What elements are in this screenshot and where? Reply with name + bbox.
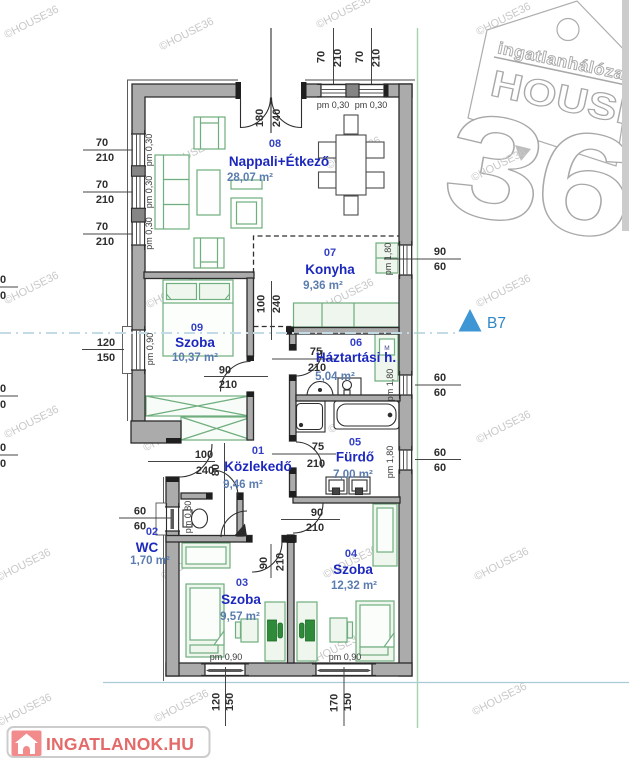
svg-text:pm 0,30: pm 0,30 bbox=[144, 176, 154, 209]
svg-text:210: 210 bbox=[96, 194, 114, 206]
svg-text:Konyha: Konyha bbox=[305, 262, 355, 277]
svg-text:pm 0,90: pm 0,90 bbox=[329, 652, 362, 662]
svg-text:7,00 m²: 7,00 m² bbox=[333, 469, 373, 481]
svg-text:75: 75 bbox=[312, 441, 324, 453]
svg-text:pm 0,30: pm 0,30 bbox=[144, 134, 154, 167]
svg-text:0: 0 bbox=[0, 290, 6, 302]
svg-text:9,57 m²: 9,57 m² bbox=[220, 611, 260, 623]
svg-text:01: 01 bbox=[252, 445, 264, 457]
svg-text:28,07 m²: 28,07 m² bbox=[227, 172, 273, 184]
svg-text:pm 0,30: pm 0,30 bbox=[317, 100, 350, 110]
svg-text:90: 90 bbox=[219, 365, 231, 377]
svg-text:150: 150 bbox=[224, 693, 236, 711]
svg-text:B7: B7 bbox=[487, 315, 506, 332]
svg-text:90: 90 bbox=[434, 246, 446, 258]
svg-text:M: M bbox=[384, 345, 389, 352]
svg-text:90: 90 bbox=[258, 557, 270, 569]
svg-text:0: 0 bbox=[0, 442, 6, 454]
svg-text:60: 60 bbox=[434, 261, 446, 273]
svg-text:0: 0 bbox=[0, 383, 6, 395]
svg-text:180: 180 bbox=[254, 109, 266, 127]
svg-text:pm 1,80: pm 1,80 bbox=[385, 369, 395, 402]
svg-text:240: 240 bbox=[271, 295, 283, 313]
svg-text:170: 170 bbox=[329, 694, 341, 712]
svg-text:60: 60 bbox=[134, 506, 146, 518]
svg-text:70: 70 bbox=[96, 221, 108, 233]
svg-text:210: 210 bbox=[307, 458, 325, 470]
svg-text:60: 60 bbox=[434, 447, 446, 459]
svg-text:9,46 m²: 9,46 m² bbox=[223, 479, 263, 491]
svg-text:120: 120 bbox=[97, 337, 115, 349]
svg-text:210: 210 bbox=[332, 49, 344, 67]
svg-text:100: 100 bbox=[195, 449, 213, 461]
svg-text:90: 90 bbox=[311, 507, 323, 519]
svg-text:9,36 m²: 9,36 m² bbox=[303, 280, 343, 292]
svg-text:60: 60 bbox=[134, 521, 146, 533]
svg-text:Közlekedő: Közlekedő bbox=[224, 459, 292, 474]
svg-text:150: 150 bbox=[97, 352, 115, 364]
svg-text:pm 0,30: pm 0,30 bbox=[355, 100, 388, 110]
svg-text:100: 100 bbox=[256, 295, 268, 313]
svg-text:0: 0 bbox=[0, 458, 6, 470]
svg-text:210: 210 bbox=[96, 152, 114, 164]
svg-text:12,32 m²: 12,32 m² bbox=[331, 580, 377, 592]
svg-text:Háztartási h.: Háztartási h. bbox=[316, 350, 396, 365]
svg-text:06: 06 bbox=[350, 337, 362, 349]
svg-text:120: 120 bbox=[211, 693, 223, 711]
svg-text:70: 70 bbox=[354, 51, 366, 63]
svg-text:210: 210 bbox=[96, 236, 114, 248]
svg-text:pm 0,30: pm 0,30 bbox=[144, 217, 154, 250]
svg-text:03: 03 bbox=[236, 577, 248, 589]
svg-text:pm 0,80: pm 0,80 bbox=[183, 501, 193, 534]
svg-text:02: 02 bbox=[146, 526, 158, 538]
svg-text:60: 60 bbox=[434, 387, 446, 399]
svg-text:Fürdő: Fürdő bbox=[336, 450, 374, 465]
svg-text:80: 80 bbox=[210, 464, 222, 476]
svg-text:pm 0,90: pm 0,90 bbox=[145, 333, 155, 366]
svg-text:04: 04 bbox=[345, 548, 358, 560]
svg-text:1,70 m²: 1,70 m² bbox=[130, 555, 170, 567]
svg-text:240: 240 bbox=[271, 109, 283, 127]
svg-text:70: 70 bbox=[96, 137, 108, 149]
svg-text:210: 210 bbox=[306, 522, 324, 534]
svg-text:05: 05 bbox=[349, 437, 361, 449]
svg-text:70: 70 bbox=[316, 51, 328, 63]
svg-text:INGATLANOK.HU: INGATLANOK.HU bbox=[46, 734, 194, 754]
svg-text:60: 60 bbox=[434, 372, 446, 384]
svg-text:210: 210 bbox=[371, 49, 383, 67]
svg-text:pm 1,80: pm 1,80 bbox=[385, 446, 395, 479]
svg-text:pm 0,90: pm 0,90 bbox=[210, 652, 243, 662]
svg-text:Szoba: Szoba bbox=[175, 335, 215, 350]
svg-text:WC: WC bbox=[136, 540, 159, 555]
svg-text:Szoba: Szoba bbox=[333, 562, 373, 577]
svg-text:210: 210 bbox=[219, 379, 237, 391]
svg-text:08: 08 bbox=[269, 138, 281, 150]
svg-text:70: 70 bbox=[96, 179, 108, 191]
svg-text:210: 210 bbox=[275, 553, 287, 571]
svg-text:Nappali+Étkező: Nappali+Étkező bbox=[229, 154, 329, 169]
svg-text:36: 36 bbox=[434, 80, 629, 272]
svg-text:07: 07 bbox=[324, 247, 336, 259]
svg-text:pm 1,80: pm 1,80 bbox=[383, 243, 393, 276]
svg-text:0: 0 bbox=[0, 274, 6, 286]
svg-text:09: 09 bbox=[191, 322, 203, 334]
svg-text:150: 150 bbox=[342, 693, 354, 711]
svg-text:60: 60 bbox=[434, 462, 446, 474]
svg-text:0: 0 bbox=[0, 399, 6, 411]
svg-text:10,37 m²: 10,37 m² bbox=[172, 352, 218, 364]
svg-text:5,04 m²: 5,04 m² bbox=[315, 371, 355, 383]
svg-text:Szoba: Szoba bbox=[221, 592, 261, 607]
